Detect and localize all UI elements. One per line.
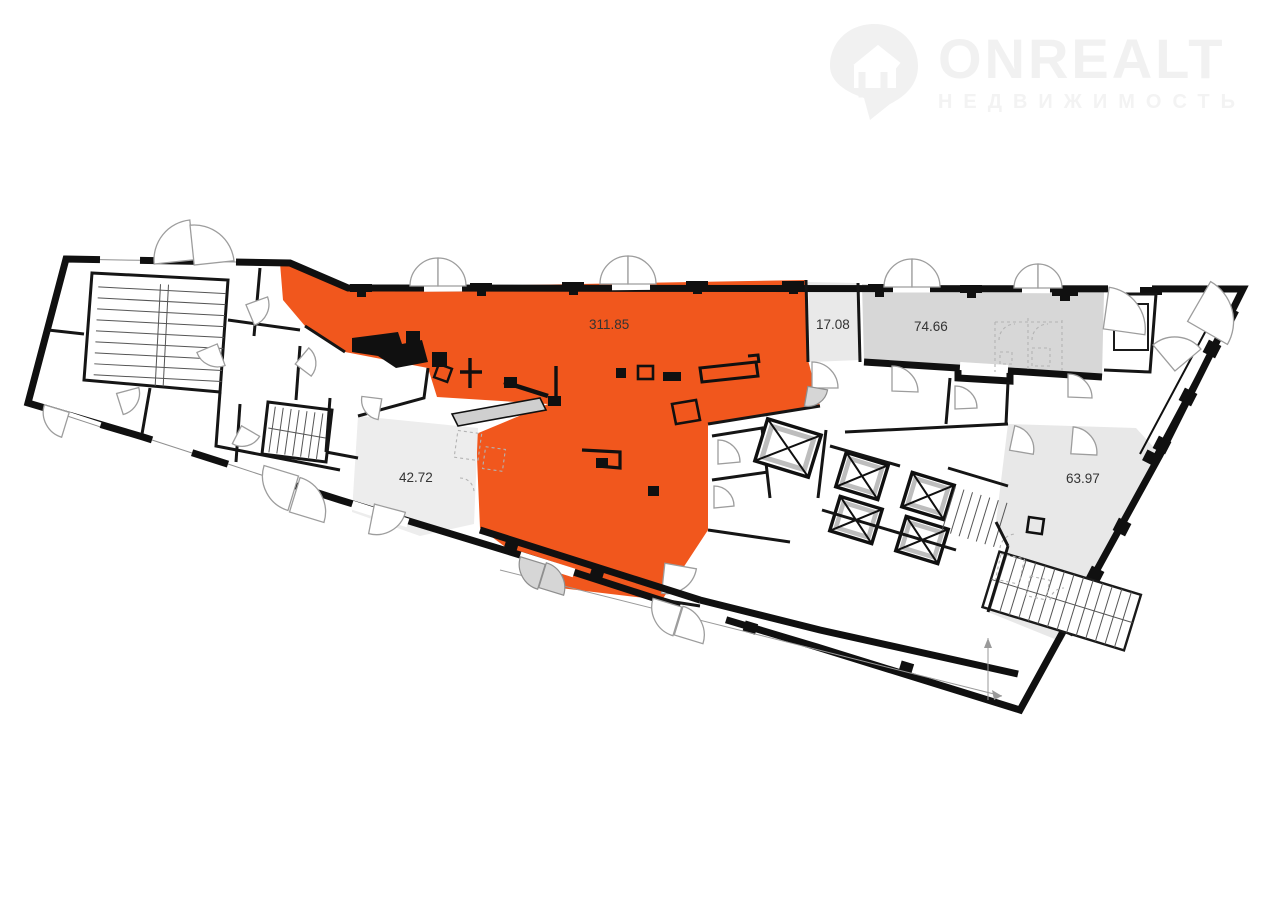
- floorplan-page: ONREALT НЕДВИЖИМОСТЬ: [0, 0, 1280, 910]
- label-63-97: 63.97: [1066, 471, 1100, 486]
- floorplan-drawing: 311.85 17.08 74.66 42.72 63.97: [0, 0, 1280, 910]
- elevator-shafts: [755, 419, 1008, 564]
- stairwell-mid: [262, 402, 332, 462]
- label-main-area: 311.85: [589, 317, 629, 332]
- label-42-72: 42.72: [399, 470, 433, 485]
- label-74-66: 74.66: [914, 319, 948, 334]
- stairwell-left: [93, 281, 226, 390]
- label-17-08: 17.08: [816, 317, 850, 332]
